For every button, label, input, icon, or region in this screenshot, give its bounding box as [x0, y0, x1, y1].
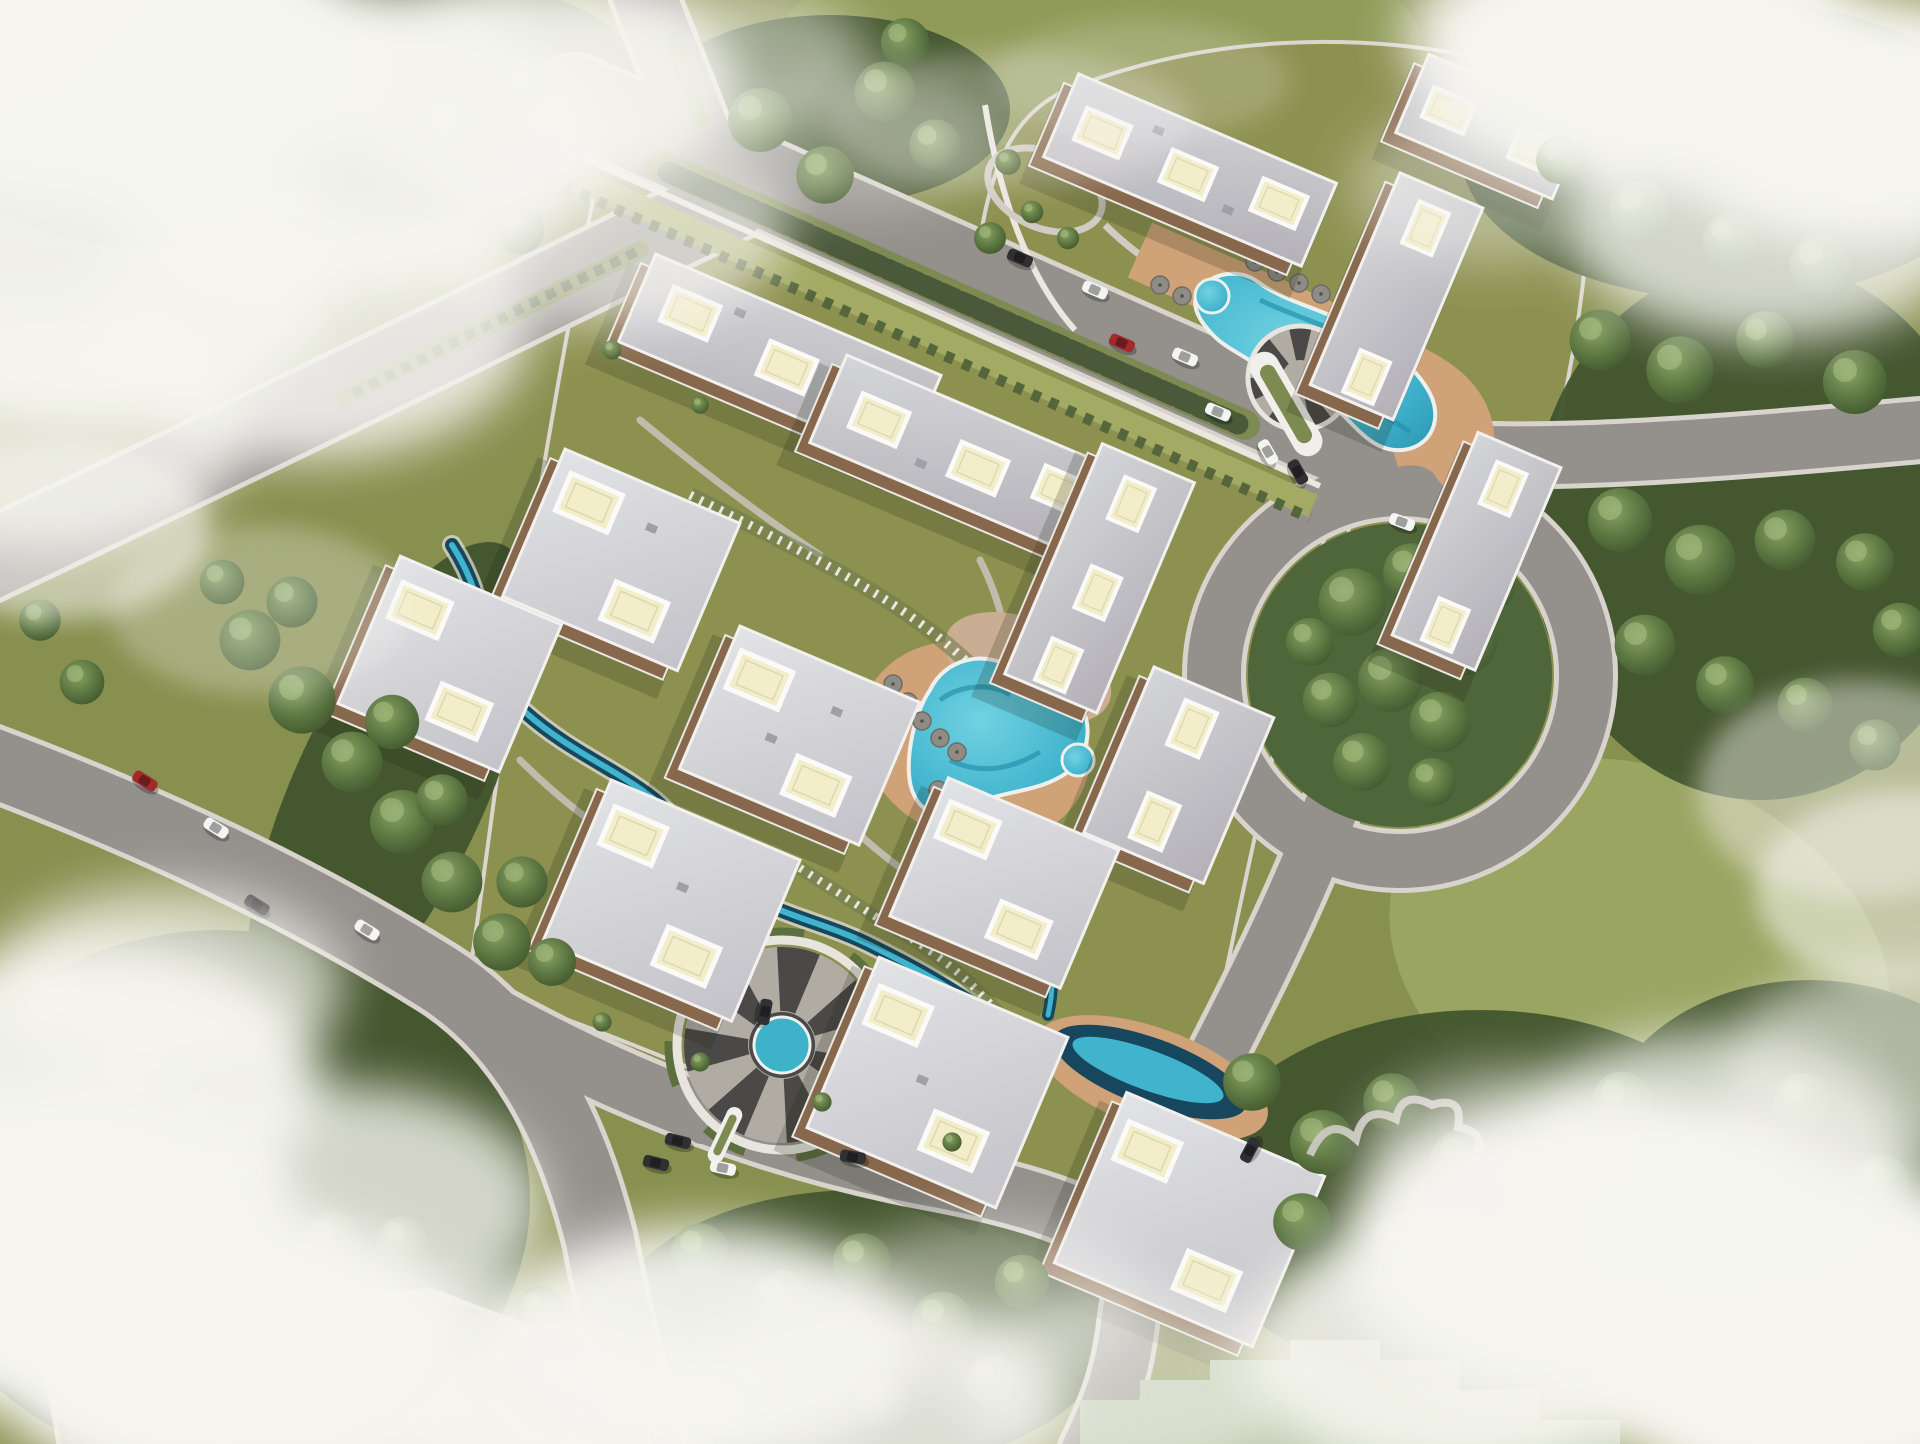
round-kids-pool	[1195, 279, 1229, 313]
umbrella-icon	[1151, 276, 1169, 294]
shrub-icon	[602, 340, 621, 359]
tree-icon	[365, 695, 419, 749]
tree-icon	[1223, 1053, 1281, 1111]
masterplan-render	[0, 0, 1920, 1444]
umbrella-icon	[1312, 285, 1330, 303]
tree-icon	[881, 18, 929, 66]
shrub-icon	[690, 1052, 709, 1071]
tree-icon	[974, 222, 1006, 254]
tree-icon	[1570, 310, 1631, 371]
tree-icon	[473, 913, 531, 971]
tree-icon	[1333, 733, 1391, 791]
tree-icon	[60, 660, 105, 705]
tree-icon	[528, 938, 576, 986]
tree-icon	[1286, 618, 1334, 666]
tree-icon	[1646, 336, 1713, 403]
shrub-icon	[592, 1012, 611, 1031]
umbrella-icon	[1173, 287, 1191, 305]
cloud-puff	[1350, 105, 1630, 265]
tree-icon	[1318, 568, 1385, 635]
tree-icon	[1303, 673, 1357, 727]
tree-icon	[1696, 656, 1754, 714]
tree-icon	[1823, 350, 1887, 414]
tree-icon	[496, 856, 547, 907]
tree-icon	[1665, 525, 1735, 595]
ring-link-road	[1338, 440, 1372, 492]
umbrella-icon	[948, 743, 966, 761]
tree-icon	[1273, 1193, 1331, 1251]
tree-icon	[416, 774, 467, 825]
umbrella-icon	[931, 729, 949, 747]
shrub-icon	[691, 396, 709, 414]
shrub-icon	[942, 1132, 961, 1151]
cloud-puff	[1360, 1063, 1660, 1233]
cloud-puff	[990, 20, 1290, 140]
cloud-puff	[110, 525, 410, 695]
tree-icon	[1588, 488, 1652, 552]
palm-tree-icon	[1057, 227, 1079, 249]
render-canvas	[0, 0, 1920, 1444]
shrub-icon	[812, 1092, 831, 1111]
tree-icon	[1755, 510, 1816, 571]
tree-icon	[422, 852, 483, 913]
cloud-puff	[0, 885, 345, 1085]
tree-icon	[1408, 758, 1456, 806]
palm-tree-icon	[1021, 201, 1043, 223]
tree-icon	[1615, 615, 1676, 676]
tree-icon	[1836, 533, 1894, 591]
tree-icon	[1290, 1110, 1354, 1174]
